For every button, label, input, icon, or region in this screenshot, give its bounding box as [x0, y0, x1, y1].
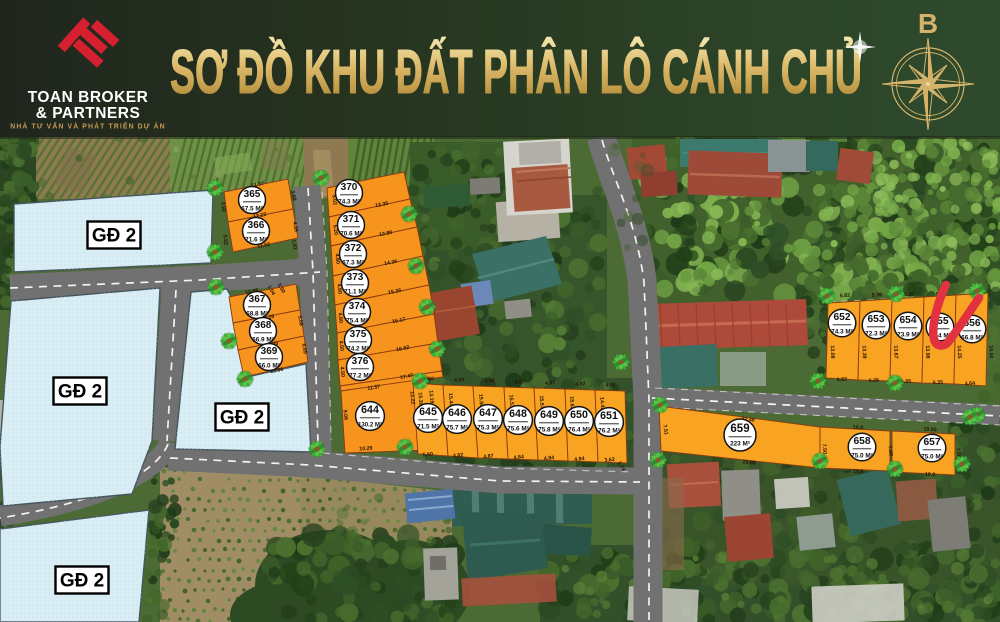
svg-text:374: 374 — [349, 301, 366, 312]
svg-text:654: 654 — [900, 315, 917, 326]
svg-text:5.92: 5.92 — [222, 235, 229, 246]
svg-text:370: 370 — [341, 182, 358, 193]
svg-text:TOAN BROKER: TOAN BROKER — [28, 89, 149, 106]
svg-text:70.6 M²: 70.6 M² — [340, 231, 362, 238]
svg-text:648: 648 — [509, 408, 527, 420]
svg-text:68.8 M²: 68.8 M² — [246, 311, 268, 318]
svg-text:66.0 M²: 66.0 M² — [258, 363, 280, 370]
svg-text:66.8 M²: 66.8 M² — [961, 335, 983, 342]
svg-text:652: 652 — [834, 312, 851, 323]
svg-text:4.87: 4.87 — [483, 453, 494, 460]
svg-text:13.98: 13.98 — [924, 345, 930, 359]
svg-text:645: 645 — [419, 406, 437, 418]
svg-text:73.9 M²: 73.9 M² — [897, 332, 919, 339]
svg-text:371: 371 — [343, 214, 360, 225]
svg-text:646: 646 — [448, 407, 466, 419]
svg-text:5.35: 5.35 — [933, 380, 944, 387]
svg-text:SƠ ĐỒ KHU ĐẤT PHÂN LÔ CÁNH CHỦ: SƠ ĐỒ KHU ĐẤT PHÂN LÔ CÁNH CHỦ — [170, 38, 862, 107]
svg-text:76.2 M²: 76.2 M² — [598, 428, 620, 435]
svg-text:4.92: 4.92 — [605, 382, 616, 389]
svg-text:651: 651 — [600, 410, 618, 422]
svg-text:223 M²: 223 M² — [730, 441, 750, 448]
svg-text:13.19: 13.19 — [427, 390, 434, 404]
svg-text:10.0: 10.0 — [853, 469, 864, 476]
svg-text:375: 375 — [350, 329, 367, 340]
svg-text:9.06: 9.06 — [342, 410, 349, 421]
svg-text:74.3 M²: 74.3 M² — [338, 199, 360, 206]
svg-text:14.50: 14.50 — [987, 345, 993, 359]
svg-text:368: 368 — [255, 320, 272, 331]
svg-text:75.0 M²: 75.0 M² — [851, 453, 873, 460]
svg-text:71.5 M²: 71.5 M² — [417, 424, 439, 431]
svg-text:650: 650 — [570, 409, 588, 421]
svg-text:12.22: 12.22 — [408, 391, 415, 405]
svg-text:74.2 M²: 74.2 M² — [347, 346, 369, 353]
svg-text:5.82: 5.82 — [837, 377, 848, 384]
svg-text:4.82: 4.82 — [453, 452, 464, 459]
svg-text:4.92: 4.92 — [514, 379, 525, 386]
svg-text:130.2 M²: 130.2 M² — [358, 422, 382, 429]
svg-text:376: 376 — [352, 356, 369, 367]
svg-text:10.00: 10.00 — [923, 427, 937, 434]
svg-text:& PARTNERS: & PARTNERS — [36, 105, 141, 122]
svg-text:13.39: 13.39 — [860, 345, 866, 359]
svg-text:4.50: 4.50 — [338, 366, 345, 377]
svg-text:367: 367 — [249, 294, 266, 305]
svg-text:4.84: 4.84 — [544, 455, 555, 462]
svg-text:3.92: 3.92 — [220, 202, 227, 213]
svg-text:5.35: 5.35 — [869, 378, 880, 385]
svg-text:71.1 M²: 71.1 M² — [344, 289, 366, 296]
svg-text:365: 365 — [244, 189, 261, 200]
svg-text:75.6 M²: 75.6 M² — [507, 426, 529, 433]
svg-text:75.8 M²: 75.8 M² — [538, 427, 560, 434]
svg-text:10.0: 10.0 — [925, 472, 936, 479]
svg-text:75.0 M²: 75.0 M² — [921, 454, 943, 461]
svg-text:4.64: 4.64 — [965, 381, 976, 388]
svg-text:76.4 M²: 76.4 M² — [568, 427, 590, 434]
svg-text:366: 366 — [248, 220, 265, 231]
svg-text:5.35: 5.35 — [904, 292, 915, 299]
svg-text:14.25: 14.25 — [956, 345, 962, 359]
svg-text:75.3 M²: 75.3 M² — [477, 425, 499, 432]
svg-text:GĐ 2: GĐ 2 — [220, 408, 264, 429]
svg-text:66.9 M²: 66.9 M² — [252, 337, 274, 344]
svg-text:4.80: 4.80 — [336, 312, 343, 323]
svg-text:644: 644 — [361, 404, 379, 416]
svg-text:5.36: 5.36 — [872, 292, 883, 299]
svg-text:4.50: 4.50 — [337, 340, 344, 351]
svg-text:GĐ 2: GĐ 2 — [92, 226, 136, 247]
svg-text:75.4 M²: 75.4 M² — [346, 318, 368, 325]
svg-text:72.3 M²: 72.3 M² — [865, 331, 887, 338]
svg-text:4.97: 4.97 — [545, 380, 556, 387]
svg-text:15.38: 15.38 — [417, 392, 424, 406]
svg-text:13.08: 13.08 — [829, 345, 835, 359]
svg-text:10.29: 10.29 — [359, 446, 373, 453]
svg-text:647: 647 — [479, 407, 497, 419]
svg-text:3.62: 3.62 — [604, 457, 615, 464]
svg-text:4.92: 4.92 — [454, 377, 465, 384]
svg-text:658: 658 — [854, 436, 871, 447]
svg-text:372: 372 — [345, 243, 362, 254]
svg-text:4.84: 4.84 — [574, 456, 585, 463]
svg-text:653: 653 — [868, 314, 885, 325]
svg-text:13.67: 13.67 — [892, 345, 898, 359]
svg-text:4.84: 4.84 — [513, 454, 524, 461]
svg-text:74.3 M²: 74.3 M² — [831, 329, 853, 336]
svg-text:5.82: 5.82 — [840, 293, 851, 300]
svg-text:657: 657 — [924, 437, 941, 448]
svg-text:GĐ 2: GĐ 2 — [58, 382, 102, 403]
svg-text:4.92: 4.92 — [575, 381, 586, 388]
svg-text:75.7 M²: 75.7 M² — [446, 425, 468, 432]
svg-text:B: B — [918, 8, 938, 39]
svg-text:369: 369 — [261, 346, 278, 357]
svg-text:67.5 M²: 67.5 M² — [241, 206, 263, 213]
svg-text:659: 659 — [730, 423, 749, 435]
svg-text:77.2 M²: 77.2 M² — [349, 373, 371, 380]
svg-text:373: 373 — [347, 272, 364, 283]
svg-text:29.88: 29.88 — [742, 459, 756, 466]
svg-text:GĐ 2: GĐ 2 — [60, 571, 104, 592]
svg-text:10.0: 10.0 — [853, 425, 864, 432]
svg-text:7.60: 7.60 — [887, 446, 894, 457]
svg-text:67.3 M²: 67.3 M² — [342, 260, 364, 267]
svg-text:4.90: 4.90 — [484, 378, 495, 385]
svg-text:71.6 M²: 71.6 M² — [245, 237, 267, 244]
svg-text:649: 649 — [540, 409, 558, 421]
svg-text:5.50: 5.50 — [422, 451, 433, 458]
